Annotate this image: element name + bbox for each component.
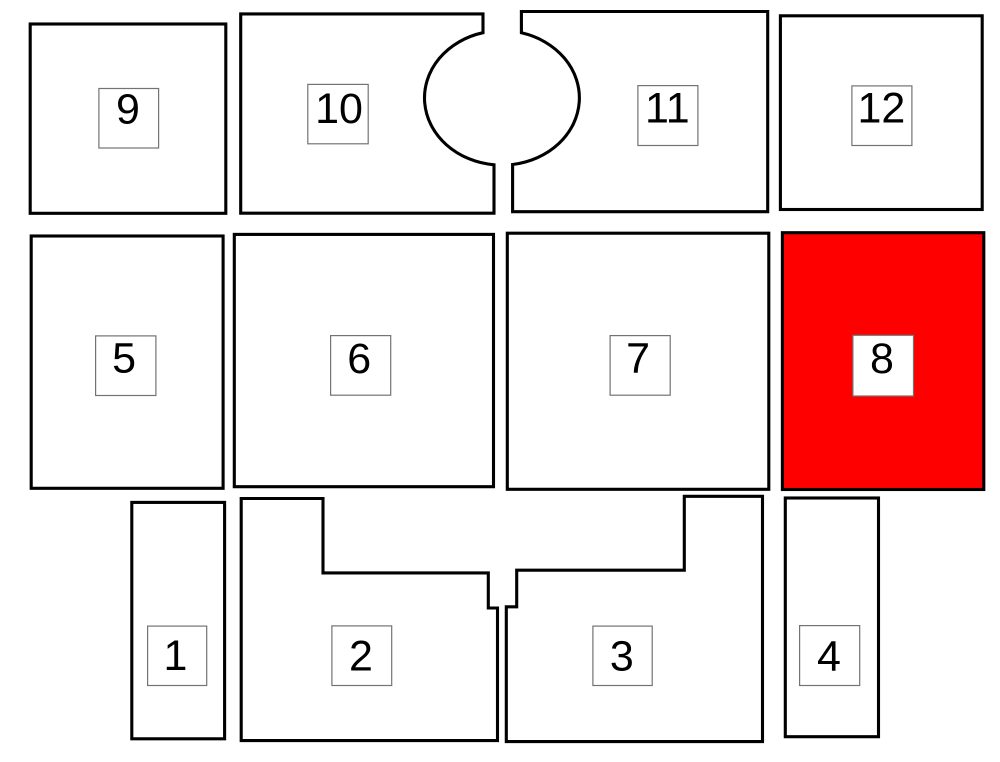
svg-text:6: 6 bbox=[347, 335, 371, 383]
svg-text:3: 3 bbox=[610, 633, 634, 681]
svg-text:7: 7 bbox=[626, 335, 650, 383]
svg-text:8: 8 bbox=[870, 335, 894, 383]
svg-text:4: 4 bbox=[817, 633, 841, 681]
svg-text:9: 9 bbox=[116, 86, 140, 134]
svg-text:12: 12 bbox=[857, 84, 905, 132]
svg-text:11: 11 bbox=[645, 85, 690, 133]
svg-text:10: 10 bbox=[315, 85, 363, 133]
svg-text:5: 5 bbox=[112, 334, 136, 382]
svg-text:2: 2 bbox=[349, 633, 373, 681]
svg-text:1: 1 bbox=[163, 632, 187, 680]
